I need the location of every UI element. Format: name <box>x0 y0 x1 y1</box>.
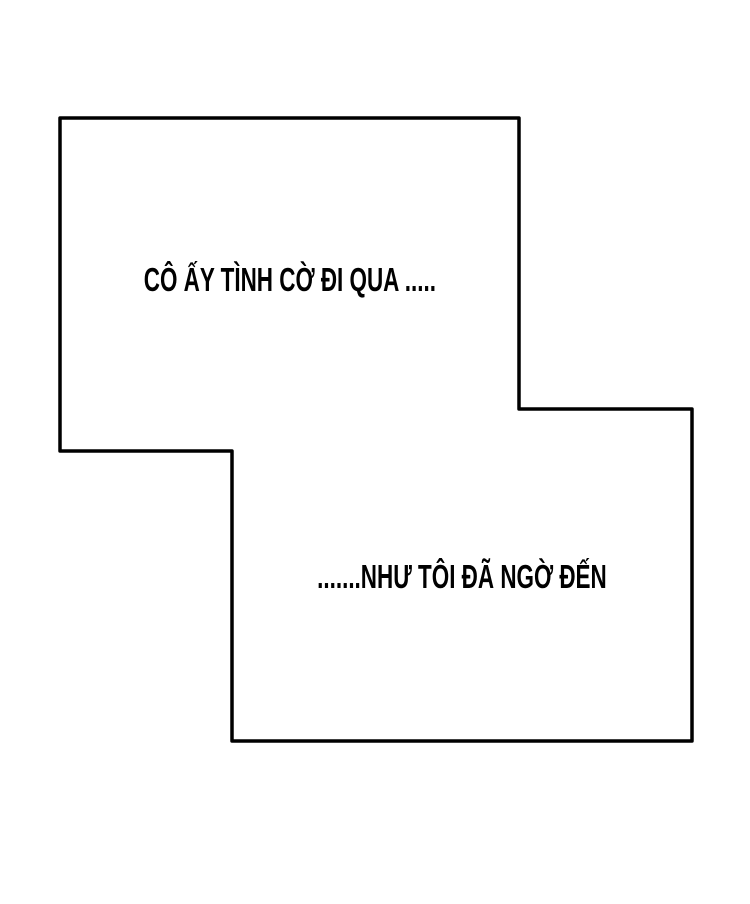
caption-bottom-text: .......NHƯ TÔI ĐÃ NGỜ ĐẾN <box>317 558 607 596</box>
comic-page: CÔ ẤY TÌNH CỜ ĐI QUA ..... .......NHƯ TÔ… <box>0 0 750 904</box>
panel-outline-canvas <box>0 0 750 904</box>
panel-outline <box>60 118 692 741</box>
caption-bottom: .......NHƯ TÔI ĐÃ NGỜ ĐẾN <box>232 558 692 596</box>
caption-top: CÔ ẤY TÌNH CỜ ĐI QUA ..... <box>60 261 519 299</box>
caption-top-text: CÔ ẤY TÌNH CỜ ĐI QUA ..... <box>143 261 435 299</box>
